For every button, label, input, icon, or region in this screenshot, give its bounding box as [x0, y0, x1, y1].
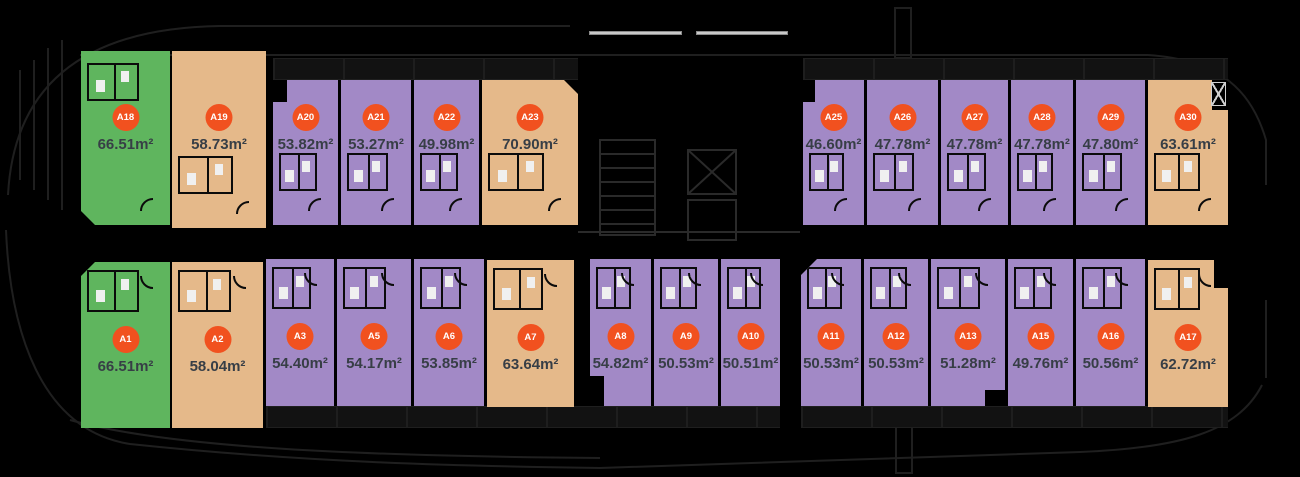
unit-a29[interactable]: A29 47.80m² [1076, 80, 1145, 225]
unit-area-label: 47.78m² [1014, 136, 1070, 153]
unit-area-label: 47.78m² [875, 136, 931, 153]
unit-a2[interactable]: A2 58.04m² [172, 262, 263, 428]
unit-area-label: 54.40m² [272, 355, 328, 372]
unit-badge: A5 [361, 323, 388, 350]
unit-a10[interactable]: A10 50.51m² [721, 259, 780, 406]
unit-a9[interactable]: A9 50.53m² [654, 259, 718, 406]
unit-area-label: 49.98m² [419, 136, 475, 153]
unit-badge: A12 [883, 323, 910, 350]
unit-area-label: 54.17m² [346, 355, 402, 372]
unit-area-label: 63.61m² [1160, 136, 1216, 153]
unit-badge: A26 [889, 104, 916, 131]
unit-area-label: 50.53m² [658, 355, 714, 372]
unit-badge: A9 [673, 323, 700, 350]
unit-a3[interactable]: A3 54.40m² [266, 259, 334, 406]
unit-badge: A7 [517, 324, 544, 351]
unit-area-label: 51.28m² [940, 355, 996, 372]
unit-badge: A29 [1097, 104, 1124, 131]
unit-area-label: 54.82m² [593, 355, 649, 372]
unit-area-label: 50.53m² [868, 355, 924, 372]
unit-badge: A25 [820, 104, 847, 131]
unit-badge: A22 [433, 104, 460, 131]
unit-area-label: 47.78m² [947, 136, 1003, 153]
unit-area-label: 58.04m² [190, 358, 246, 375]
unit-area-label: 53.27m² [348, 136, 404, 153]
unit-badge: A20 [292, 104, 319, 131]
unit-badge: A21 [363, 104, 390, 131]
dimension-bar-left [589, 31, 682, 35]
unit-badge: A15 [1027, 323, 1054, 350]
unit-badge: A10 [737, 323, 764, 350]
unit-badge: A30 [1175, 104, 1202, 131]
unit-badge: A28 [1029, 104, 1056, 131]
unit-a15[interactable]: A15 49.76m² [1008, 259, 1073, 406]
ledge-strip-top-right [803, 58, 1228, 80]
unit-a28[interactable]: A28 47.78m² [1011, 80, 1073, 225]
unit-a5[interactable]: A5 54.17m² [337, 259, 411, 406]
unit-a18[interactable]: A18 66.51m² [81, 51, 170, 225]
unit-badge: A1 [112, 326, 139, 353]
unit-a27[interactable]: A27 47.78m² [941, 80, 1008, 225]
unit-a13[interactable]: A13 51.28m² [931, 259, 1005, 406]
unit-a11[interactable]: A11 50.53m² [801, 259, 861, 406]
unit-area-label: 46.60m² [806, 136, 862, 153]
unit-area-label: 70.90m² [502, 136, 558, 153]
unit-badge: A8 [607, 323, 634, 350]
unit-a12[interactable]: A12 50.53m² [864, 259, 928, 406]
unit-area-label: 53.85m² [421, 355, 477, 372]
unit-a22[interactable]: A22 49.98m² [414, 80, 479, 225]
unit-area-label: 66.51m² [98, 136, 154, 153]
unit-badge: A13 [955, 323, 982, 350]
unit-area-label: 58.73m² [191, 136, 247, 153]
unit-a7[interactable]: A7 63.64m² [487, 260, 574, 407]
unit-area-label: 49.76m² [1013, 355, 1069, 372]
unit-a26[interactable]: A26 47.78m² [867, 80, 938, 225]
unit-badge: A23 [517, 104, 544, 131]
unit-area-label: 63.64m² [503, 356, 559, 373]
unit-a19[interactable]: A19 58.73m² [172, 51, 266, 228]
unit-badge: A19 [206, 104, 233, 131]
ledge-strip-top-left [273, 58, 578, 80]
unit-badge: A3 [287, 323, 314, 350]
unit-badge: A6 [436, 323, 463, 350]
unit-area-label: 53.82m² [278, 136, 334, 153]
unit-badge: A2 [204, 326, 231, 353]
unit-area-label: 62.72m² [1160, 356, 1216, 373]
unit-badge: A11 [818, 323, 845, 350]
unit-area-label: 47.80m² [1083, 136, 1139, 153]
floor-plan-canvas: A18 66.51m² A19 58.73m² A20 53.82m² A21 … [0, 0, 1300, 477]
unit-a23[interactable]: A23 70.90m² [482, 80, 578, 225]
ledge-strip-bottom-left [266, 406, 780, 428]
unit-a16[interactable]: A16 50.56m² [1076, 259, 1145, 406]
ledge-strip-bottom-right [801, 406, 1228, 428]
unit-area-label: 50.56m² [1083, 355, 1139, 372]
unit-badge: A18 [112, 104, 139, 131]
unit-badge: A27 [961, 104, 988, 131]
unit-area-label: 66.51m² [98, 358, 154, 375]
unit-a1[interactable]: A1 66.51m² [81, 262, 170, 428]
dimension-bar-right [696, 31, 788, 35]
unit-a6[interactable]: A6 53.85m² [414, 259, 484, 406]
unit-a21[interactable]: A21 53.27m² [341, 80, 411, 225]
elevator-shaft-icon [1211, 82, 1226, 106]
unit-badge: A16 [1097, 323, 1124, 350]
unit-area-label: 50.51m² [723, 355, 779, 372]
unit-area-label: 50.53m² [803, 355, 859, 372]
unit-badge: A17 [1175, 324, 1202, 351]
